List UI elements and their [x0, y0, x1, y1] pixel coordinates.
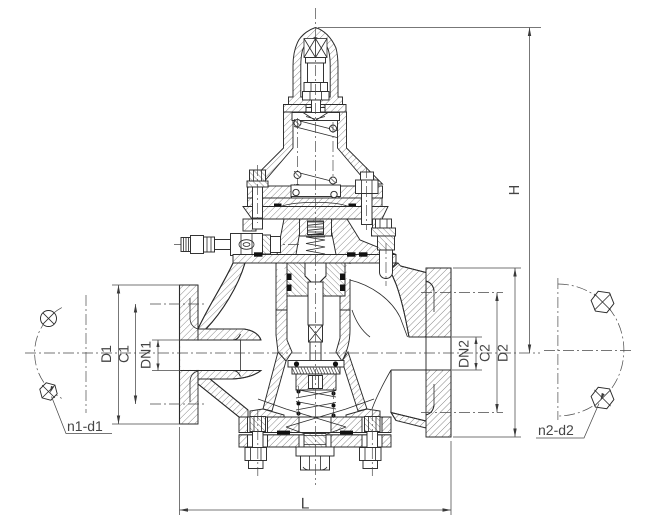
- svg-text:DN1: DN1: [138, 341, 154, 369]
- svg-text:D2: D2: [495, 344, 511, 362]
- svg-text:C1: C1: [116, 345, 132, 363]
- svg-text:L: L: [301, 496, 310, 513]
- svg-text:H: H: [507, 185, 523, 195]
- svg-text:DN2: DN2: [456, 340, 472, 368]
- svg-text:n2-d2: n2-d2: [538, 422, 574, 438]
- svg-text:D1: D1: [98, 345, 114, 363]
- svg-text:C2: C2: [477, 344, 493, 362]
- svg-text:n1-d1: n1-d1: [67, 418, 103, 434]
